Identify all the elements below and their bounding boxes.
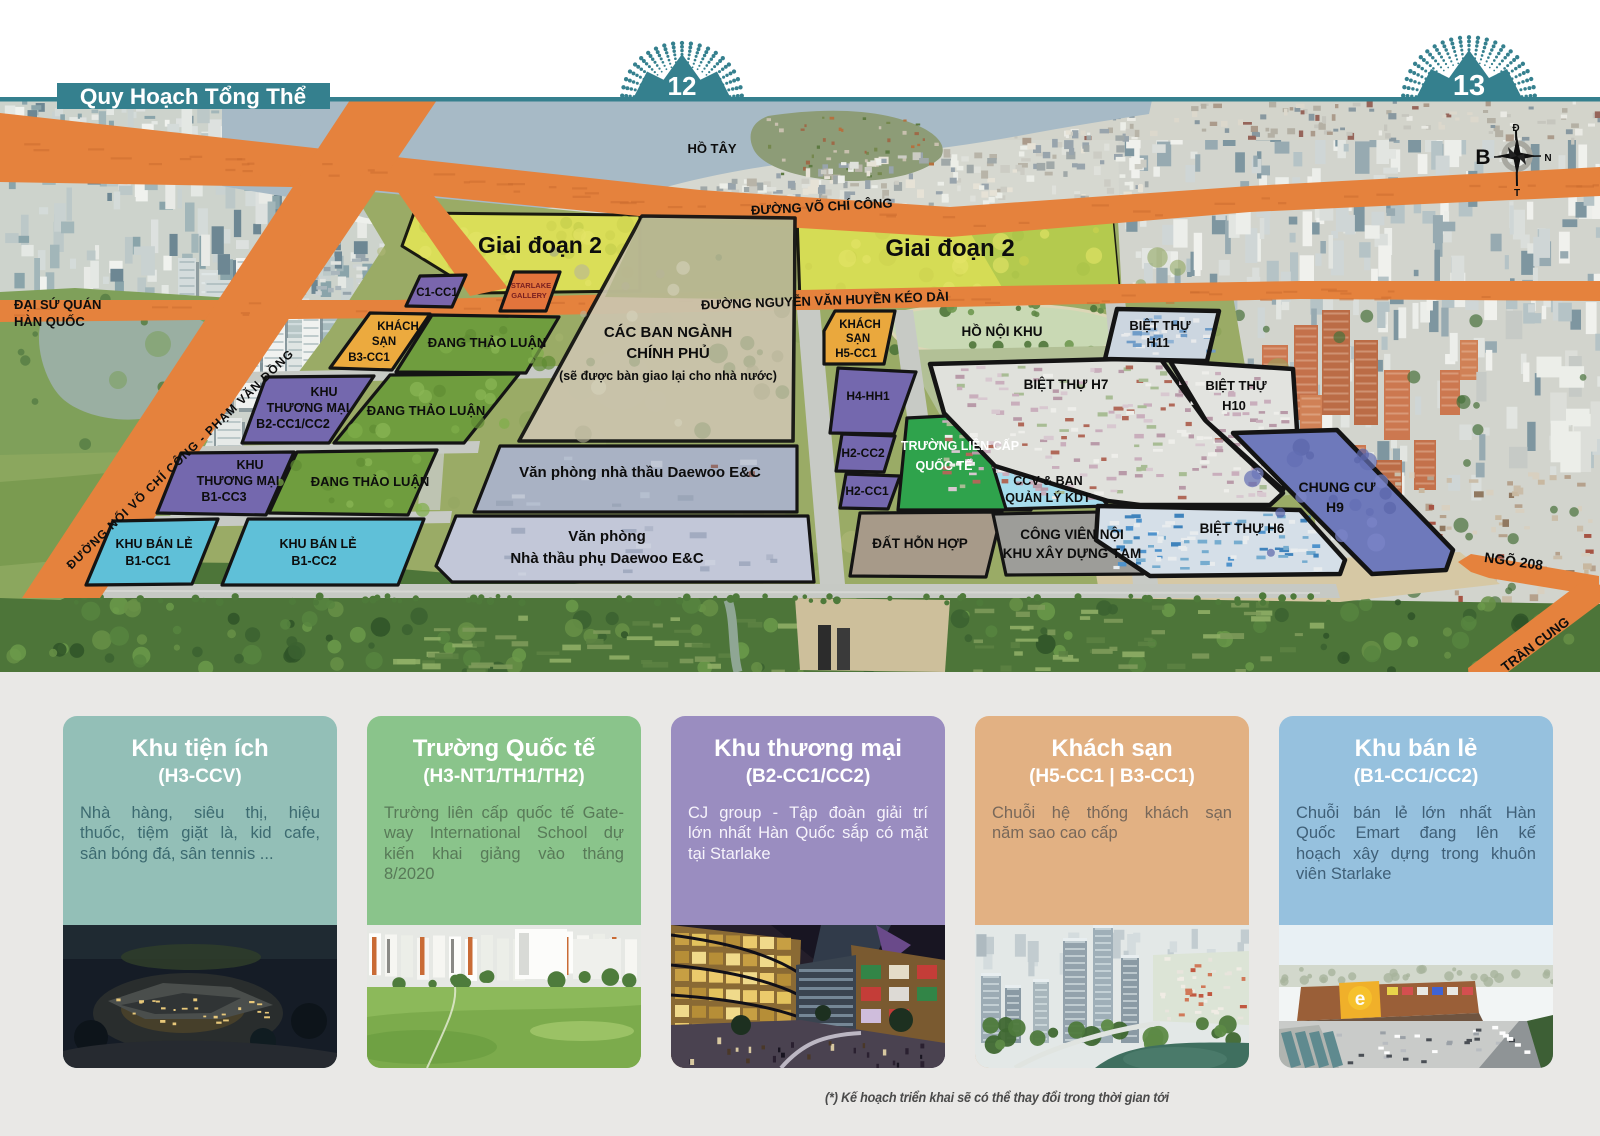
svg-text:KHU: KHU xyxy=(236,458,263,472)
svg-text:BIỆT THỰ H7: BIỆT THỰ H7 xyxy=(1024,377,1109,392)
svg-text:H5-CC1: H5-CC1 xyxy=(835,348,877,360)
svg-text:C1-CC1: C1-CC1 xyxy=(416,287,458,299)
svg-text:CHUNG CƯ: CHUNG CƯ xyxy=(1299,479,1376,495)
svg-text:12: 12 xyxy=(668,71,697,101)
svg-text:BIỆT THỰ H6: BIỆT THỰ H6 xyxy=(1200,521,1285,536)
svg-text:(sẽ được bàn giao lại cho nhà: (sẽ được bàn giao lại cho nhà nước) xyxy=(559,369,777,383)
svg-text:HỒ TÂY: HỒ TÂY xyxy=(687,141,736,156)
svg-text:CÁC BAN NGÀNH: CÁC BAN NGÀNH xyxy=(604,324,732,341)
svg-text:Văn phòng: Văn phòng xyxy=(568,528,646,545)
svg-text:CHÍNH PHỦ: CHÍNH PHỦ xyxy=(626,344,709,362)
svg-text:QUẢN LÝ KDT: QUẢN LÝ KDT xyxy=(1005,490,1091,505)
svg-text:Văn phòng nhà thầu Daewoo E&C: Văn phòng nhà thầu Daewoo E&C xyxy=(519,464,761,481)
svg-text:H4-HH1: H4-HH1 xyxy=(846,389,890,403)
svg-text:H10: H10 xyxy=(1222,398,1246,413)
svg-text:KHU: KHU xyxy=(310,385,337,399)
svg-text:B3-CC1: B3-CC1 xyxy=(348,352,390,364)
svg-text:Quy Hoạch Tổng Thể: Quy Hoạch Tổng Thể xyxy=(80,84,306,109)
svg-text:THƯƠNG MẠI: THƯƠNG MẠI xyxy=(197,474,280,488)
svg-text:B: B xyxy=(1475,146,1490,169)
svg-text:HỒ NỘI KHU: HỒ NỘI KHU xyxy=(962,324,1043,339)
svg-text:SẠN: SẠN xyxy=(846,333,870,345)
svg-text:Đ: Đ xyxy=(1512,123,1519,134)
svg-text:13: 13 xyxy=(1453,70,1485,102)
svg-text:THƯƠNG MẠI: THƯƠNG MẠI xyxy=(267,401,350,415)
svg-text:B1-CC3: B1-CC3 xyxy=(201,490,246,504)
svg-text:GALLERY: GALLERY xyxy=(511,291,547,300)
svg-text:KHU BÁN LẺ: KHU BÁN LẺ xyxy=(279,536,356,551)
svg-text:N: N xyxy=(1544,153,1551,164)
svg-text:HÀN QUỐC: HÀN QUỐC xyxy=(14,314,85,329)
svg-text:CÔNG VIÊN NỘI: CÔNG VIÊN NỘI xyxy=(1020,527,1124,542)
svg-text:H2-CC1: H2-CC1 xyxy=(845,484,889,498)
svg-text:ĐẠI SỨ QUÁN: ĐẠI SỨ QUÁN xyxy=(14,297,101,312)
svg-text:ĐANG THẢO LUẬN: ĐANG THẢO LUẬN xyxy=(428,335,546,350)
svg-text:Giai đoạn 2: Giai đoạn 2 xyxy=(478,232,602,258)
svg-text:TRƯỜNG LIÊN CẤP: TRƯỜNG LIÊN CẤP xyxy=(901,438,1019,453)
svg-text:STARLAKE: STARLAKE xyxy=(511,281,551,290)
svg-text:CCV & BAN: CCV & BAN xyxy=(1013,474,1082,488)
svg-text:e: e xyxy=(1355,989,1366,1010)
svg-text:H2-CC2: H2-CC2 xyxy=(841,446,885,460)
svg-text:KHU BÁN LẺ: KHU BÁN LẺ xyxy=(115,536,192,551)
svg-text:T: T xyxy=(1514,188,1520,199)
svg-text:B1-CC1: B1-CC1 xyxy=(125,554,170,568)
svg-text:KHÁCH: KHÁCH xyxy=(839,318,881,331)
svg-text:BIỆT THỰ: BIỆT THỰ xyxy=(1129,318,1191,333)
svg-text:KHÁCH: KHÁCH xyxy=(377,320,419,333)
svg-text:B2-CC1/CC2: B2-CC1/CC2 xyxy=(256,417,330,431)
svg-text:QUỐC TẾ: QUỐC TẾ xyxy=(916,458,973,473)
svg-text:KHU XÂY DỰNG TẠM: KHU XÂY DỰNG TẠM xyxy=(1003,546,1141,561)
svg-text:BIỆT THỰ: BIỆT THỰ xyxy=(1205,378,1267,393)
svg-text:H9: H9 xyxy=(1326,499,1344,515)
svg-text:ĐANG THẢO LUẬN: ĐANG THẢO LUẬN xyxy=(311,474,429,489)
svg-text:ĐANG THẢO LUẬN: ĐANG THẢO LUẬN xyxy=(367,403,485,418)
svg-text:SẠN: SẠN xyxy=(372,336,396,348)
svg-text:Giai đoạn 2: Giai đoạn 2 xyxy=(885,235,1014,262)
svg-text:ĐẤT HỖN HỢP: ĐẤT HỖN HỢP xyxy=(872,536,968,551)
svg-text:B1-CC2: B1-CC2 xyxy=(291,554,336,568)
svg-text:Nhà thầu phụ Daewoo E&C: Nhà thầu phụ Daewoo E&C xyxy=(510,550,704,567)
svg-text:H11: H11 xyxy=(1146,335,1169,350)
